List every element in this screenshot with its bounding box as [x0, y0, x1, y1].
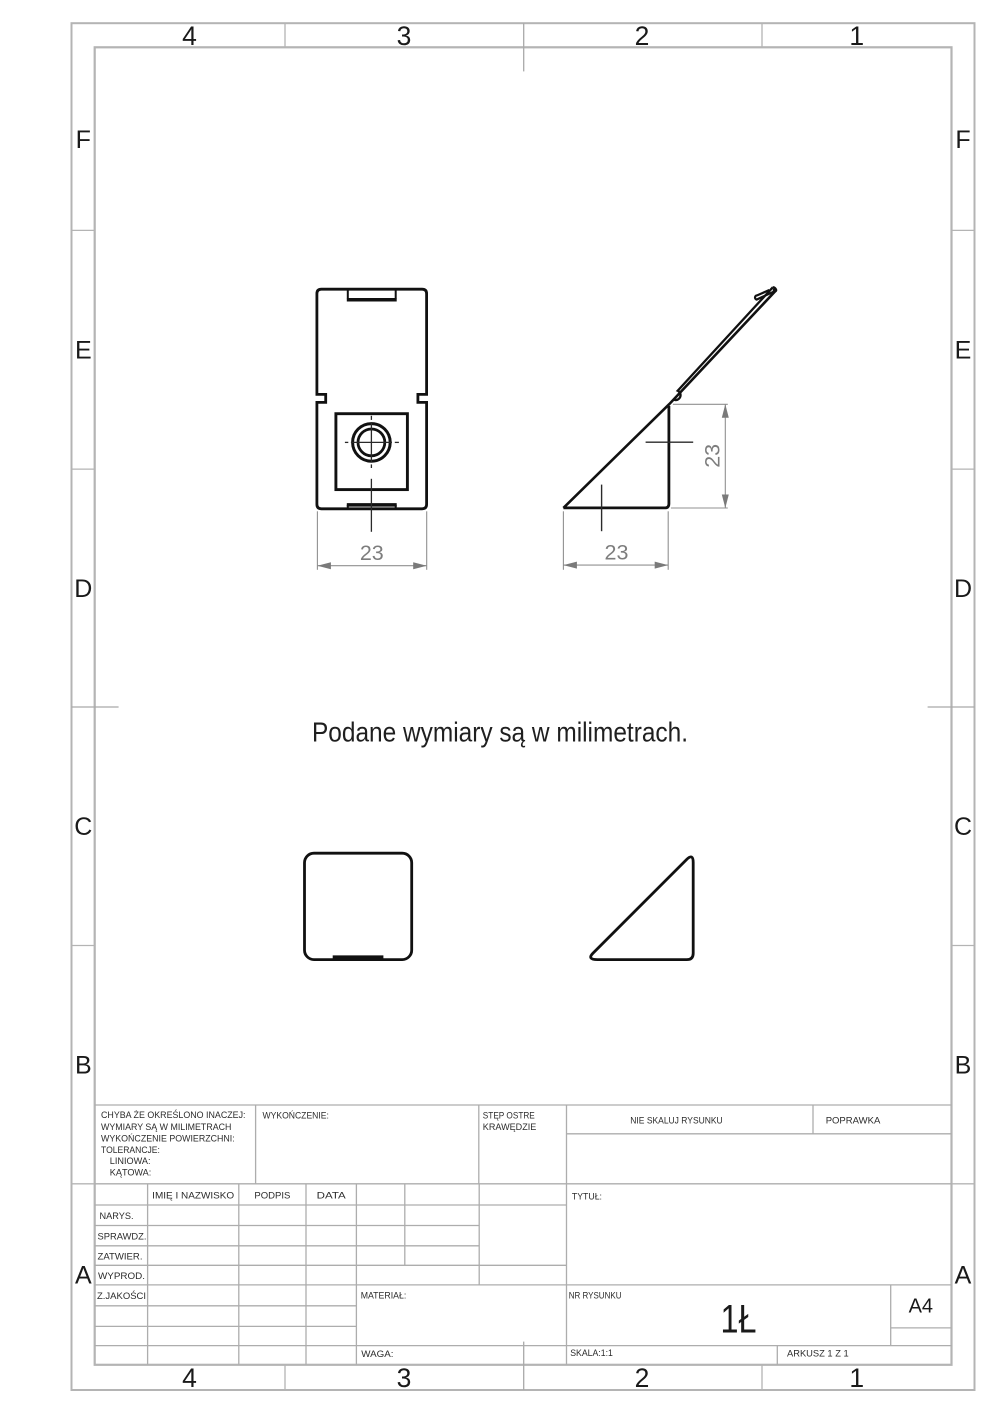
- svg-text:3: 3: [397, 1363, 412, 1393]
- svg-text:TOLERANCJE:: TOLERANCJE:: [101, 1145, 160, 1156]
- svg-text:WYKOŃCZENIE POWIERZCHNI:: WYKOŃCZENIE POWIERZCHNI:: [101, 1133, 235, 1144]
- svg-text:NIE SKALUJ RYSUNKU: NIE SKALUJ RYSUNKU: [630, 1116, 723, 1127]
- svg-text:KĄTOWA:: KĄTOWA:: [110, 1167, 152, 1178]
- svg-text:DATA: DATA: [317, 1191, 347, 1202]
- svg-text:WYKOŃCZENIE:: WYKOŃCZENIE:: [263, 1111, 329, 1122]
- svg-text:STĘP OSTRE: STĘP OSTRE: [483, 1111, 535, 1122]
- svg-text:PODPIS: PODPIS: [254, 1191, 290, 1202]
- svg-text:LINIOWA:: LINIOWA:: [110, 1156, 151, 1167]
- svg-text:IMIĘ I NAZWISKO: IMIĘ I NAZWISKO: [152, 1191, 234, 1202]
- svg-text:TYTUŁ:: TYTUŁ:: [572, 1192, 602, 1203]
- svg-text:2: 2: [635, 1363, 650, 1393]
- svg-text:C: C: [74, 813, 92, 841]
- svg-text:23: 23: [700, 444, 724, 468]
- svg-text:NR RYSUNKU: NR RYSUNKU: [569, 1291, 622, 1302]
- svg-text:MATERIAŁ:: MATERIAŁ:: [361, 1291, 407, 1302]
- svg-text:SKALA:1:1: SKALA:1:1: [570, 1348, 613, 1359]
- svg-text:3: 3: [397, 21, 412, 51]
- svg-text:A4: A4: [909, 1296, 933, 1318]
- svg-text:WYPROD.: WYPROD.: [98, 1271, 145, 1282]
- svg-text:D: D: [954, 575, 972, 603]
- svg-text:WYMIARY SĄ W MILIMETRACH: WYMIARY SĄ W MILIMETRACH: [101, 1122, 232, 1133]
- svg-text:A: A: [75, 1261, 92, 1289]
- svg-text:F: F: [955, 126, 970, 154]
- svg-text:1: 1: [849, 21, 864, 51]
- svg-text:ZATWIER.: ZATWIER.: [98, 1252, 143, 1263]
- svg-text:E: E: [75, 336, 92, 364]
- svg-text:D: D: [74, 575, 92, 603]
- svg-text:ARKUSZ 1 Z 1: ARKUSZ 1 Z 1: [787, 1348, 849, 1359]
- svg-text:C: C: [954, 813, 972, 841]
- svg-text:4: 4: [182, 1363, 197, 1393]
- svg-text:Z.JAKOŚCI: Z.JAKOŚCI: [97, 1290, 146, 1302]
- svg-text:E: E: [955, 336, 972, 364]
- svg-text:F: F: [76, 126, 91, 154]
- svg-text:B: B: [75, 1052, 92, 1080]
- svg-text:WAGA:: WAGA:: [361, 1349, 393, 1360]
- svg-text:POPRAWKA: POPRAWKA: [826, 1116, 881, 1127]
- svg-text:KRAWĘDZIE: KRAWĘDZIE: [483, 1122, 537, 1133]
- svg-text:SPRAWDZ.: SPRAWDZ.: [98, 1232, 147, 1243]
- svg-text:2: 2: [635, 21, 650, 51]
- svg-text:1Ł: 1Ł: [721, 1297, 757, 1341]
- svg-text:B: B: [955, 1052, 972, 1080]
- svg-text:A: A: [955, 1261, 972, 1289]
- svg-text:NARYS.: NARYS.: [100, 1211, 134, 1222]
- svg-text:CHYBA ŻE OKREŚLONO INACZEJ:: CHYBA ŻE OKREŚLONO INACZEJ:: [101, 1109, 246, 1121]
- svg-text:1: 1: [849, 1363, 864, 1393]
- svg-text:4: 4: [182, 21, 197, 51]
- svg-text:23: 23: [360, 541, 384, 565]
- svg-text:Podane wymiary są w milimetrac: Podane wymiary są w milimetrach.: [312, 717, 688, 748]
- svg-text:23: 23: [605, 541, 629, 565]
